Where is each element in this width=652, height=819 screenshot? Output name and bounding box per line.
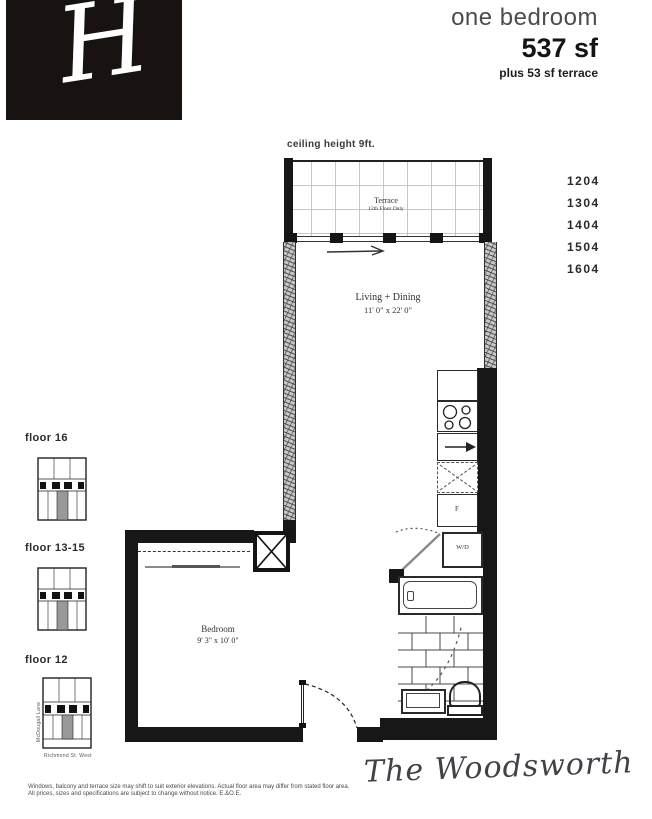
- keyplan-floor12: [42, 677, 92, 749]
- floorplan-page: H one bedroom 537 sf plus 53 sf terrace …: [0, 0, 652, 819]
- bedroom-top-wall: [125, 530, 254, 543]
- logo-letter: H: [50, 0, 156, 98]
- cooktop-burners-icon: [437, 401, 478, 432]
- tub-faucet-icon: [407, 591, 414, 601]
- street-label-bottom: Richmond St. West: [44, 753, 104, 759]
- bedroom-left-wall: [125, 530, 138, 742]
- vanity-sink: [406, 693, 440, 708]
- living-right-window-wall: [484, 242, 497, 370]
- unit-number: 1204: [567, 170, 600, 192]
- closet-dashed-line: [138, 551, 250, 552]
- keyplan-floor16: [37, 457, 87, 521]
- closet-slider-door: [172, 565, 220, 568]
- entry-door-swing: [303, 680, 361, 730]
- sink-faucet-icon: [437, 433, 478, 461]
- dishwasher-x-icon: [437, 462, 478, 493]
- unit-number: 1504: [567, 236, 600, 258]
- living-left-window-wall: [283, 242, 296, 523]
- unit-number-list: 1204 1304 1404 1504 1604: [567, 170, 600, 280]
- bedroom-label: Bedroom: [158, 624, 278, 634]
- shaft-x-icon: [257, 535, 286, 568]
- bedroom-dimensions: 9' 3" x 10' 0": [158, 636, 278, 645]
- toilet-bowl: [449, 681, 481, 707]
- disclaimer: Windows, balcony and terrace size may sh…: [28, 784, 398, 798]
- wall-post: [430, 233, 443, 243]
- bedroom-bottom-wall: [125, 727, 303, 742]
- wall-post: [330, 233, 343, 243]
- terrace-label: Terrace: [336, 196, 436, 205]
- wall-post: [383, 233, 396, 243]
- keyplan-floor13-15: [37, 567, 87, 631]
- structural-shaft: [253, 531, 290, 572]
- terrace-right-wall: [483, 158, 492, 236]
- keyplan-floor12-label: floor 12: [25, 654, 68, 666]
- living-dining-label: Living + Dining: [328, 292, 448, 303]
- right-exterior-wall: [483, 532, 497, 740]
- kitchen-wall: [477, 368, 497, 533]
- unit-type-title: one bedroom: [451, 4, 598, 32]
- kitchen-counter: [437, 370, 478, 401]
- bath-bottom-wall: [380, 718, 497, 740]
- bathtub-basin: [403, 581, 477, 609]
- keyplan-floor13-15-label: floor 13-15: [25, 542, 85, 554]
- unit-area-extra: plus 53 sf terrace: [499, 66, 598, 80]
- slide-direction-arrow: [325, 243, 395, 257]
- toilet-tank: [447, 705, 483, 716]
- project-brand-signature: The Woodsworth: [364, 745, 635, 789]
- builder-logo: H: [6, 0, 182, 120]
- keyplan-floor16-label: floor 16: [25, 432, 68, 444]
- disclaimer-line: Windows, balcony and terrace size may sh…: [28, 784, 398, 791]
- unit-number: 1404: [567, 214, 600, 236]
- terrace-left-wall: [284, 158, 293, 236]
- unit-number: 1304: [567, 192, 600, 214]
- washer-dryer-label: W/D: [442, 544, 483, 551]
- terrace-note: 12th Floor Only: [336, 206, 436, 212]
- disclaimer-line: All prices, sizes and specifications are…: [28, 791, 398, 798]
- living-dining-dimensions: 11' 0" x 22' 0": [328, 305, 448, 315]
- laundry-door-swing: [392, 522, 444, 572]
- fridge-label: F: [437, 505, 477, 513]
- unit-number: 1604: [567, 258, 600, 280]
- ceiling-height-note: ceiling height 9ft.: [287, 139, 375, 150]
- unit-area: 537 sf: [521, 33, 598, 64]
